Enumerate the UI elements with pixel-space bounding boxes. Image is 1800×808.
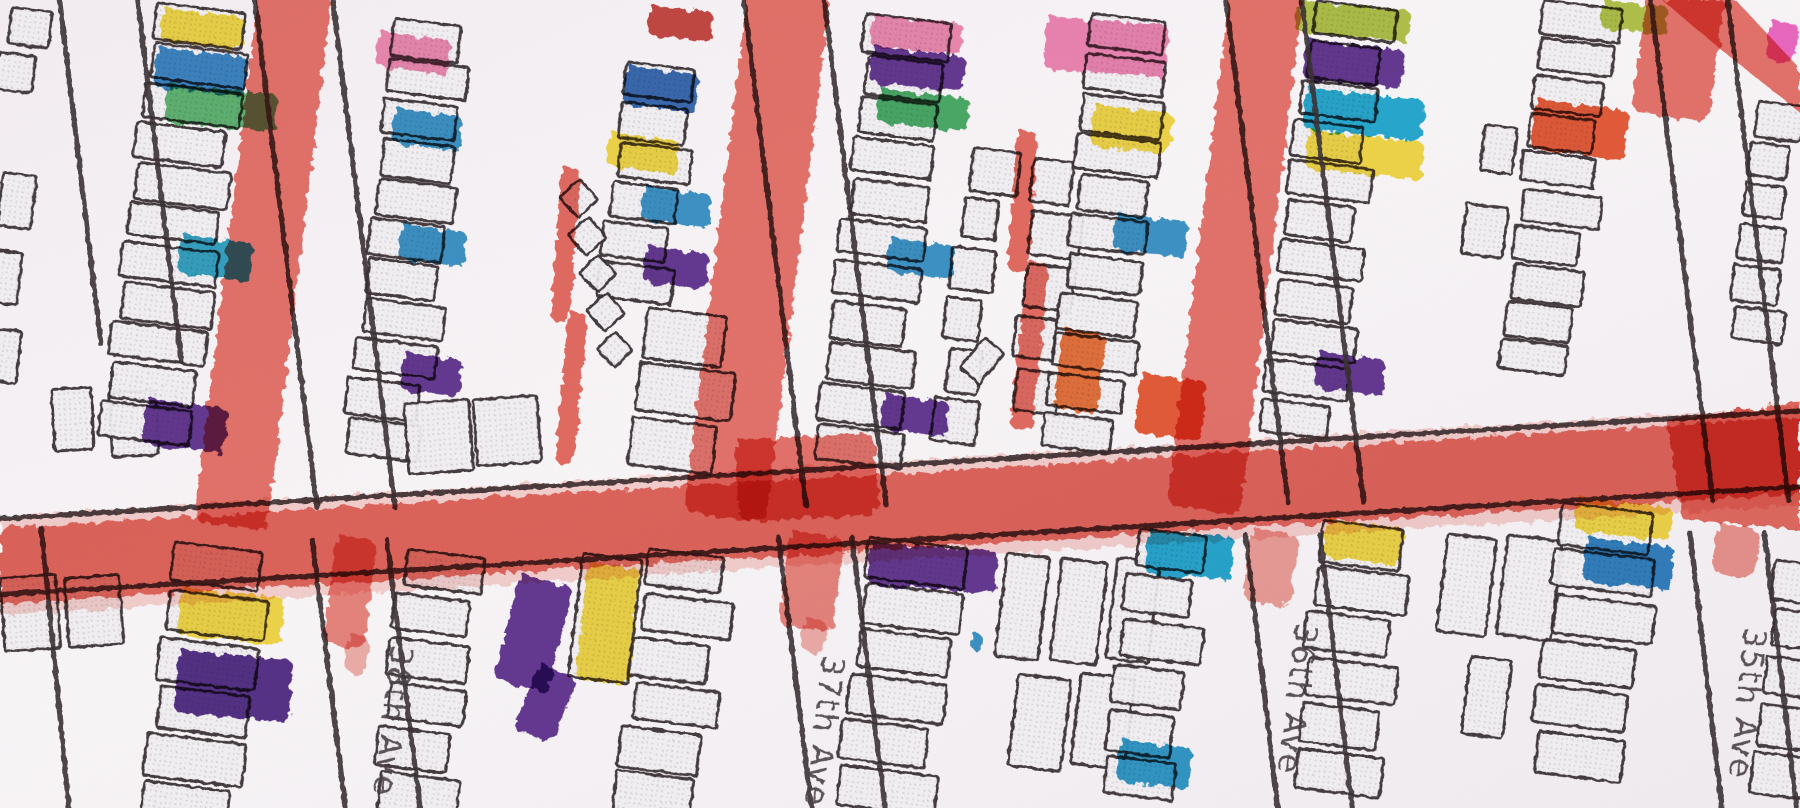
building [1747,142,1790,180]
colored-building [399,352,463,397]
building [1480,125,1518,175]
building [8,7,52,48]
map-canvas: 38th Ave 37th Ave 36th Ave 35th Ave [0,0,1800,808]
building [1512,225,1581,266]
red-street-segment [1711,523,1760,578]
building [1504,301,1573,343]
colored-building [642,246,710,290]
building [1120,619,1204,665]
building [617,726,702,776]
building [1077,174,1148,218]
building [1498,338,1568,376]
building [942,297,982,342]
red-street-segment [735,432,879,522]
building [1008,674,1072,771]
building [1461,656,1512,738]
building [1029,158,1074,206]
building [948,247,996,293]
building [1041,412,1113,453]
building [366,258,438,301]
building [404,399,473,474]
building [51,387,94,451]
building [1534,731,1625,783]
red-street-blob [1667,402,1800,531]
colored-building [647,6,714,41]
building [1732,306,1786,344]
building [1122,573,1193,618]
colored-building [1582,537,1676,590]
building [961,197,999,240]
building [851,178,930,222]
building [1511,264,1585,307]
building [1259,399,1330,439]
building [838,719,929,768]
colored-building [174,650,294,723]
building [0,52,36,93]
building [1754,101,1800,142]
colored-building [1112,213,1189,257]
building [1730,265,1780,306]
colored-building [1090,104,1174,153]
red-street-segment [778,530,844,632]
building [1461,203,1508,258]
building [473,395,541,466]
building [0,172,37,229]
building [1067,253,1143,295]
building [1284,199,1355,242]
building [1436,534,1496,637]
building [375,178,457,224]
red-street-segment [1242,528,1299,607]
building [1110,664,1184,710]
crayon-street-map: 38th Ave 37th Ave 36th Ave 35th Ave [0,0,1800,808]
building [628,637,710,684]
building [391,593,470,637]
colored-building [1043,16,1168,77]
building-stack [1461,656,1512,738]
building [1770,560,1800,605]
